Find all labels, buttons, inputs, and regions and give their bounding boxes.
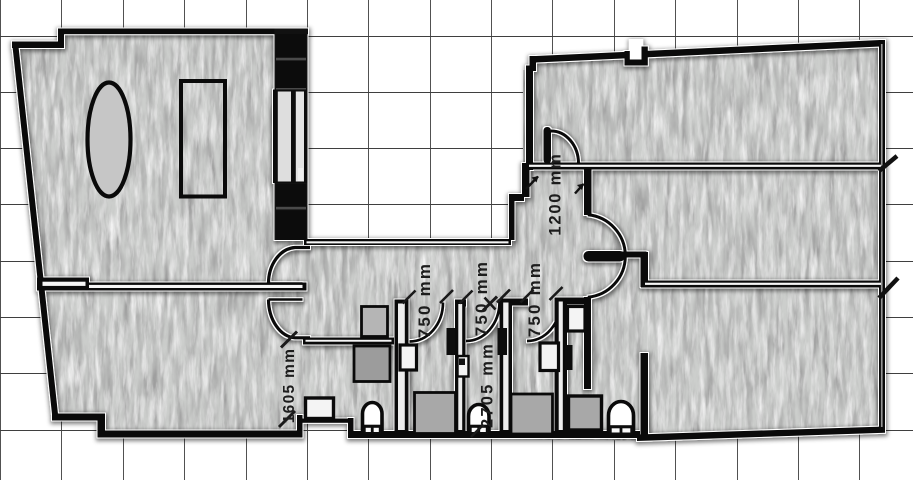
svg-text:750 mm: 750 mm [415,262,434,339]
svg-text:750 mm: 750 mm [525,261,544,338]
svg-text:1200 mm: 1200 mm [546,152,564,235]
svg-text:2705 mm: 2705 mm [478,342,496,428]
svg-text:1605 mm: 1605 mm [281,348,298,423]
svg-text:750 mm: 750 mm [472,260,491,337]
